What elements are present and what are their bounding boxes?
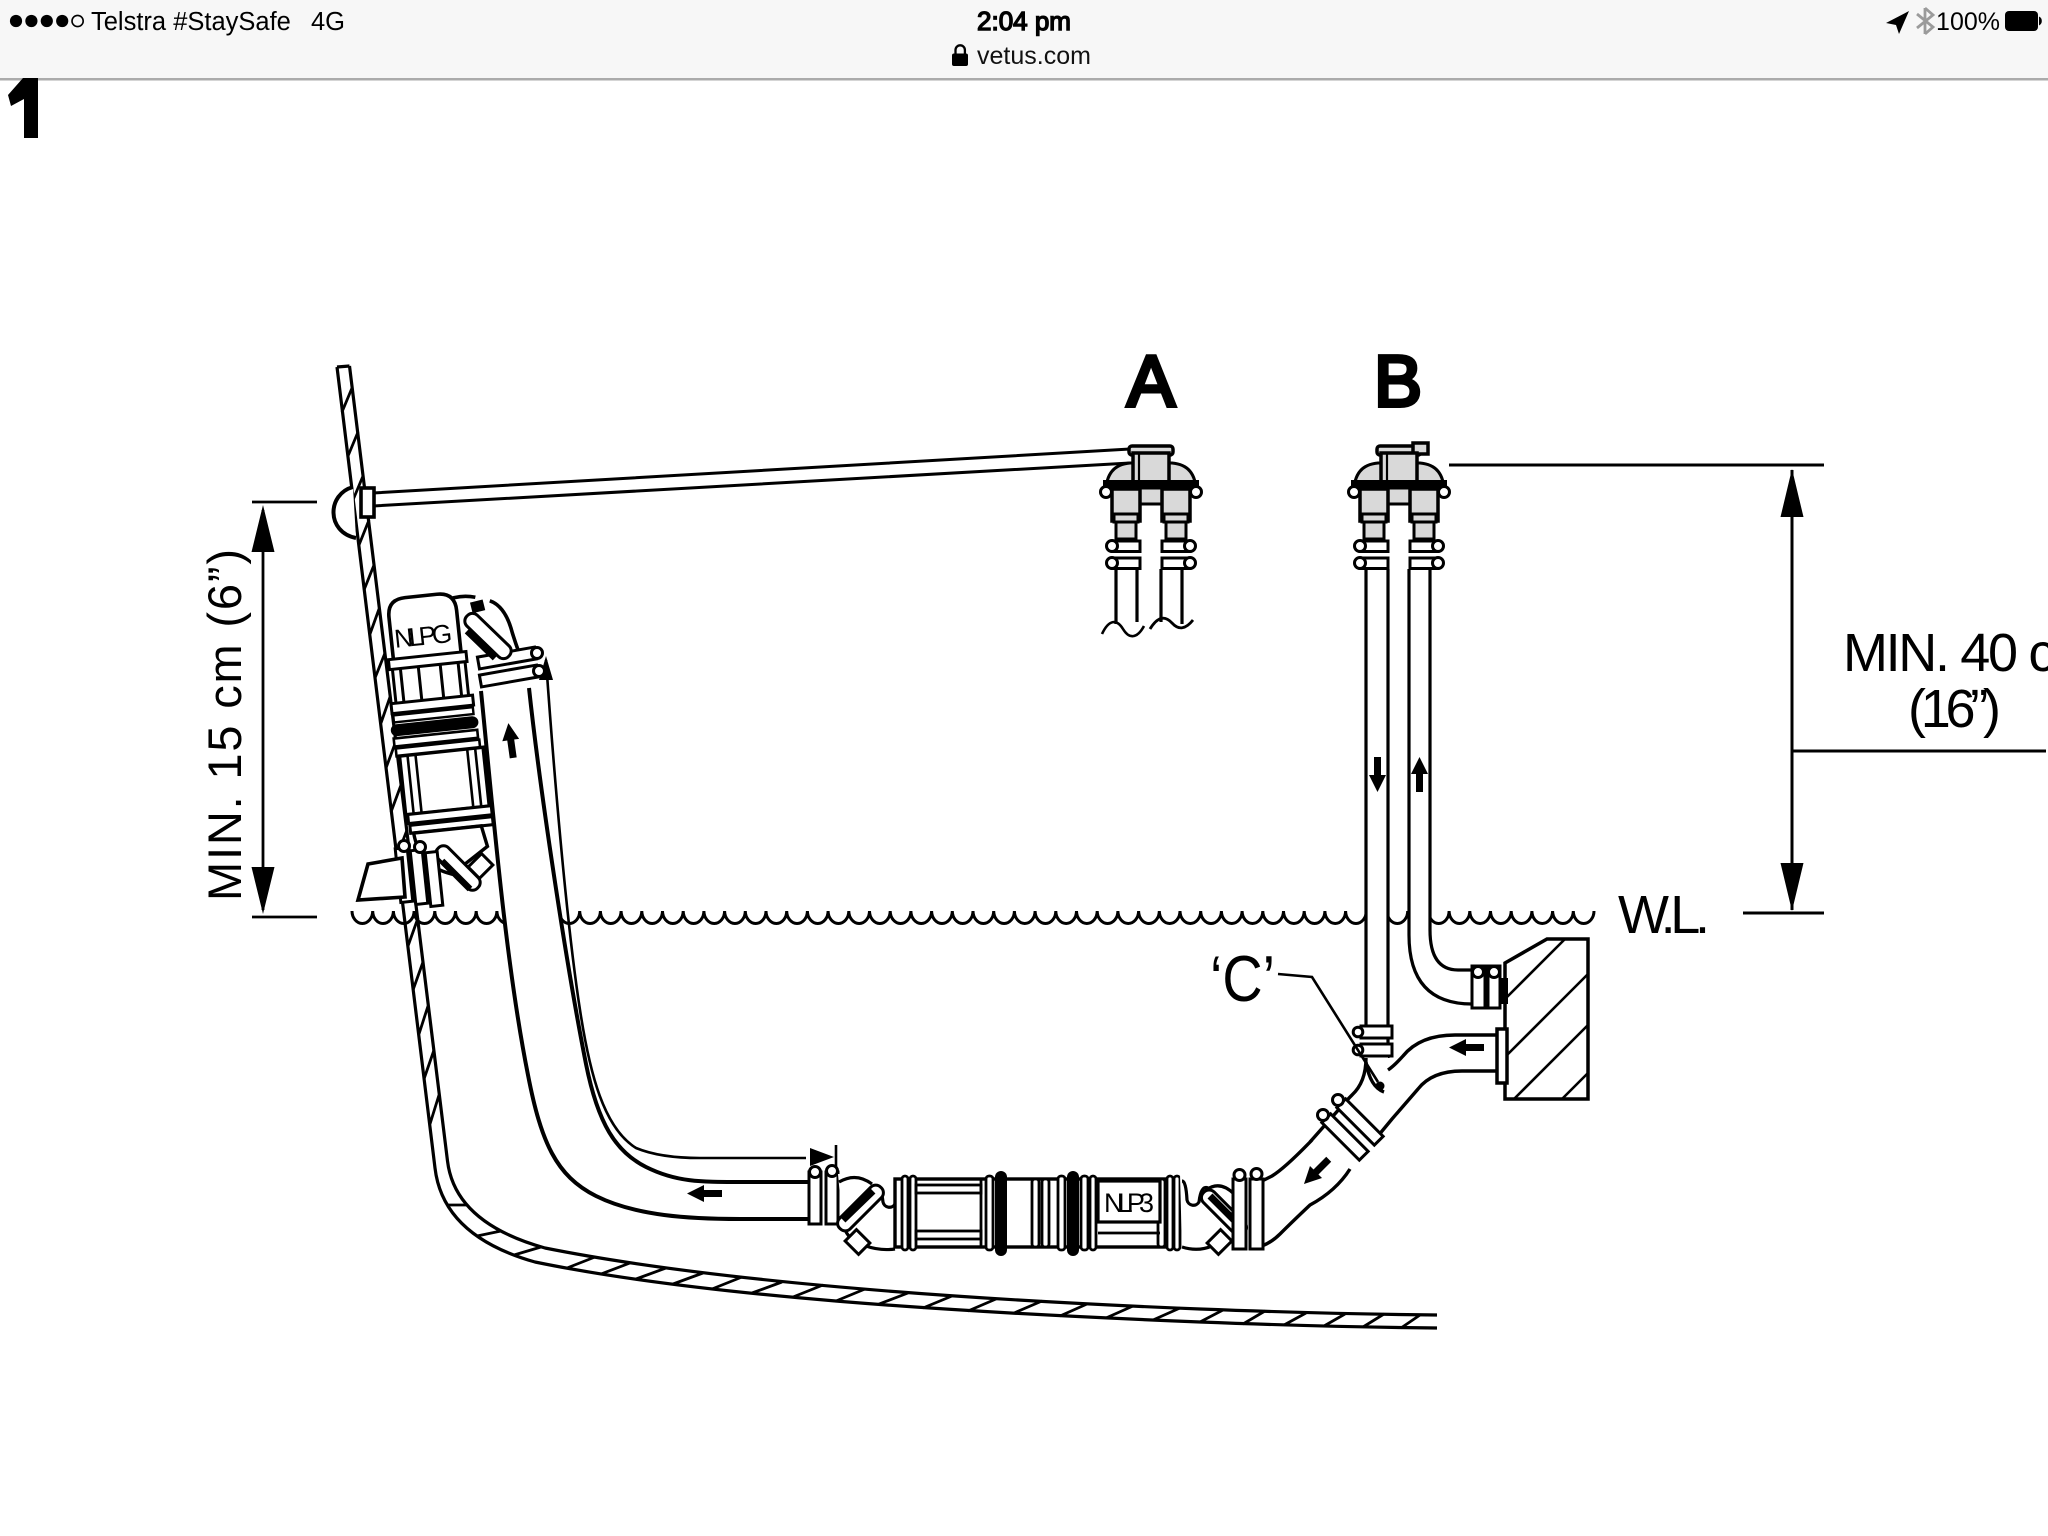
svg-text:(16”): (16”) — [1908, 679, 2001, 739]
svg-text:Telstra #StaySafe: Telstra #StaySafe — [91, 8, 291, 36]
svg-text:4G: 4G — [311, 8, 345, 36]
svg-text:NLPG: NLPG — [393, 618, 454, 654]
svg-text:‘C’: ‘C’ — [1210, 942, 1275, 1015]
svg-text:vetus.com: vetus.com — [977, 42, 1091, 70]
svg-text:A: A — [1127, 342, 1175, 422]
svg-text:2:04 pm: 2:04 pm — [977, 6, 1071, 36]
svg-text:B: B — [1374, 342, 1422, 422]
svg-text:W.L.: W.L. — [1618, 885, 1710, 945]
svg-text:NLP3: NLP3 — [1104, 1188, 1154, 1218]
svg-text:MIN. 15 cm (6”): MIN. 15 cm (6”) — [198, 549, 251, 901]
svg-text:100%: 100% — [1936, 8, 2000, 36]
svg-text:MIN. 40 cm: MIN. 40 cm — [1843, 623, 2048, 683]
